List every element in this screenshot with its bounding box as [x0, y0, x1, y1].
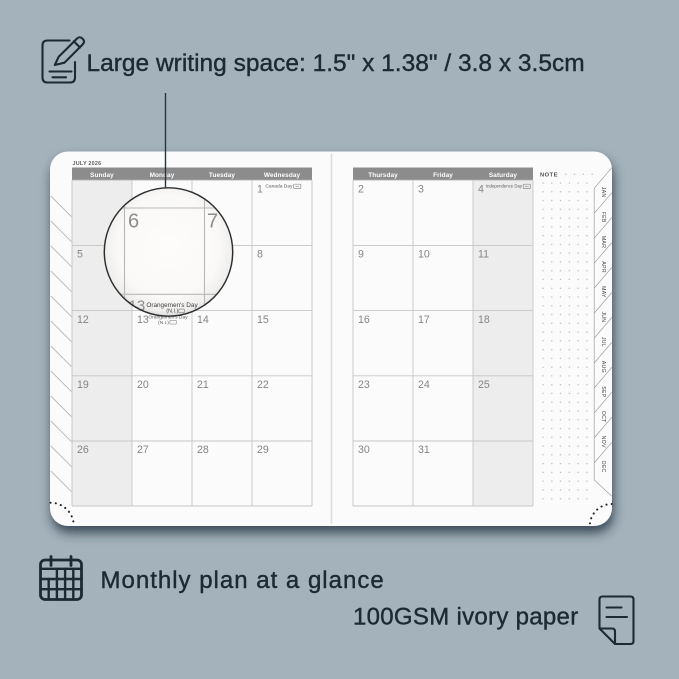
- svg-text:Large writing space: 1.5" x 1.: Large writing space: 1.5" x 1.38" / 3.8 …: [87, 50, 585, 77]
- svg-text:18: 18: [478, 314, 490, 326]
- svg-text:30: 30: [358, 444, 370, 456]
- svg-text:24: 24: [418, 379, 430, 391]
- svg-text:JULY 2026: JULY 2026: [73, 161, 102, 167]
- svg-text:Independence Day: Independence Day: [486, 183, 523, 188]
- svg-text:9: 9: [358, 249, 364, 261]
- svg-text:MAY: MAY: [600, 286, 606, 298]
- svg-text:8: 8: [257, 249, 263, 261]
- svg-text:14: 14: [197, 314, 209, 326]
- svg-text:Monday: Monday: [150, 172, 175, 179]
- svg-text:6: 6: [128, 211, 139, 233]
- svg-text:NOTE: NOTE: [540, 173, 558, 179]
- svg-text:JAN: JAN: [600, 187, 606, 198]
- svg-text:3: 3: [418, 183, 424, 195]
- svg-text:22: 22: [257, 379, 269, 391]
- svg-text:23: 23: [358, 379, 370, 391]
- svg-text:DEC: DEC: [600, 461, 606, 473]
- svg-text:2: 2: [358, 183, 364, 195]
- svg-text:Wednesday: Wednesday: [264, 172, 301, 179]
- svg-text:100GSM ivory paper: 100GSM ivory paper: [353, 603, 579, 630]
- svg-text:SEP: SEP: [600, 386, 606, 397]
- svg-text:Thursday: Thursday: [368, 172, 398, 179]
- svg-text:13: 13: [137, 314, 149, 326]
- svg-text:Sunday: Sunday: [90, 172, 114, 179]
- svg-text:5: 5: [77, 249, 83, 261]
- svg-text:19: 19: [77, 379, 89, 391]
- svg-text:27: 27: [137, 444, 149, 456]
- svg-text:OCT: OCT: [600, 411, 606, 423]
- svg-text:16: 16: [358, 314, 370, 326]
- svg-text:26: 26: [77, 444, 89, 456]
- svg-text:1: 1: [257, 183, 263, 195]
- svg-text:Canada Day: Canada Day: [265, 184, 293, 190]
- svg-text:10: 10: [418, 249, 430, 261]
- svg-text:29: 29: [257, 444, 269, 456]
- svg-text:31: 31: [418, 444, 430, 456]
- svg-text:FEB: FEB: [600, 212, 606, 223]
- svg-text:28: 28: [197, 444, 209, 456]
- svg-text:17: 17: [418, 314, 430, 326]
- svg-text:12: 12: [77, 314, 89, 326]
- svg-text:Tuesday: Tuesday: [209, 172, 235, 179]
- svg-text:Friday: Friday: [433, 172, 453, 179]
- svg-text:21: 21: [197, 379, 209, 391]
- svg-text:15: 15: [257, 314, 269, 326]
- svg-text:4: 4: [478, 183, 484, 195]
- svg-text:APR: APR: [600, 261, 606, 273]
- svg-text:11: 11: [478, 249, 489, 261]
- svg-text:Monthly plan at a glance: Monthly plan at a glance: [101, 567, 385, 594]
- svg-text:MAR: MAR: [600, 236, 606, 248]
- svg-text:Saturday: Saturday: [489, 172, 517, 179]
- svg-text:(N.I.): (N.I.): [166, 309, 178, 315]
- svg-text:(N.I.): (N.I.): [158, 320, 169, 326]
- svg-text:20: 20: [137, 379, 149, 391]
- svg-text:7: 7: [207, 211, 218, 233]
- svg-text:AUG: AUG: [600, 361, 606, 373]
- svg-text:25: 25: [478, 379, 490, 391]
- svg-text:JUL: JUL: [600, 337, 606, 347]
- svg-text:NOV: NOV: [600, 436, 606, 448]
- svg-text:JUN: JUN: [600, 311, 606, 322]
